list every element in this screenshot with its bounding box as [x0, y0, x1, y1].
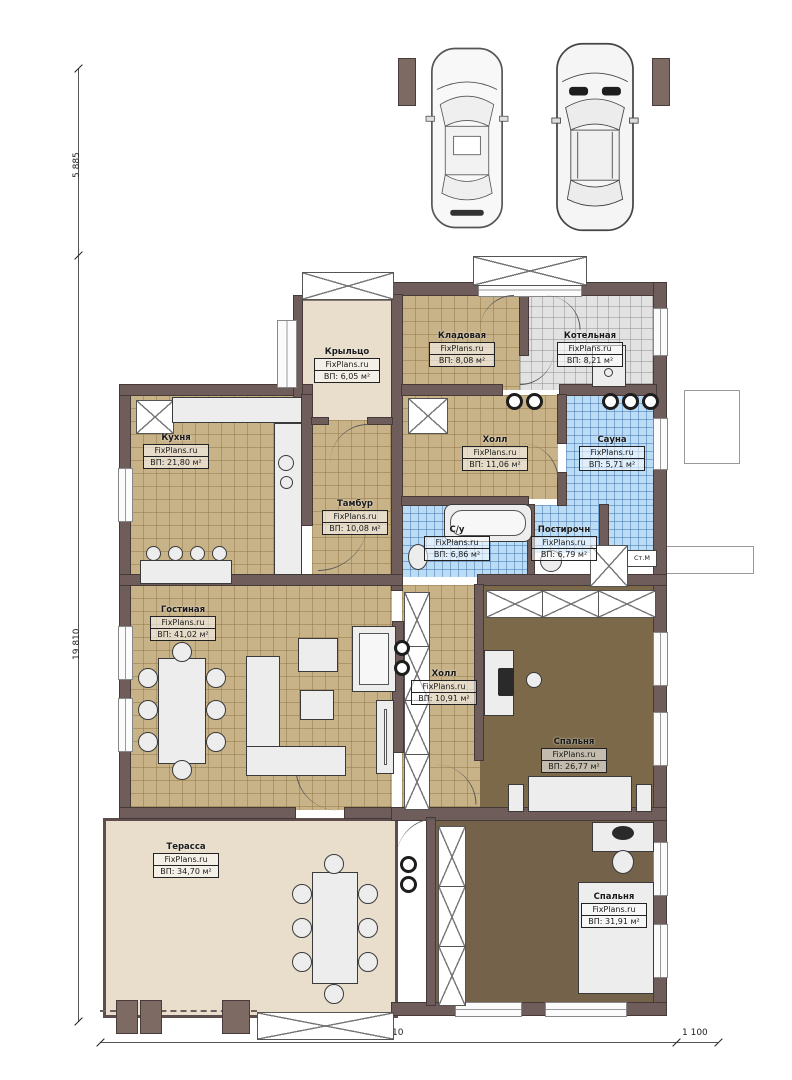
window	[545, 1002, 627, 1017]
room-label-storage: КладоваяFixPlans.ruВП: 8,08 м²	[420, 332, 504, 367]
terrace-chair	[324, 854, 344, 874]
terrace-chair	[292, 918, 312, 938]
terrace-table	[312, 872, 358, 984]
heater-dial	[604, 368, 613, 377]
porch-side-window	[277, 320, 297, 388]
room-label-kitchen: КухняFixPlans.ruВП: 21,80 м²	[134, 434, 218, 469]
wall	[558, 473, 566, 505]
washing-machine-label: Ст.М	[627, 550, 657, 567]
kitchen-counter-top	[172, 397, 302, 423]
right-annex-outline	[684, 390, 740, 464]
boiler-burner	[526, 393, 543, 410]
room-label-bedroom2: СпальняFixPlans.ruВП: 31,91 м²	[572, 893, 656, 928]
room-label-bedroom1: СпальняFixPlans.ruВП: 26,77 м²	[532, 738, 616, 773]
tv-bench	[376, 700, 394, 774]
terrace-pier	[222, 1000, 250, 1034]
kitchen-counter-side	[274, 423, 302, 575]
floor-plan-canvas: 5 885 19 810 14 810 1 100	[0, 0, 792, 1080]
terrace-chair	[292, 952, 312, 972]
wall	[558, 395, 566, 443]
cooktop-burner	[278, 455, 294, 471]
wardrobe-bedroom1	[486, 590, 544, 618]
room-label-living: ГостинаяFixPlans.ruВП: 41,02 м²	[141, 606, 225, 641]
window	[653, 632, 668, 686]
terrace-chair	[358, 918, 378, 938]
terrace-chair	[358, 884, 378, 904]
closet	[404, 754, 430, 810]
sofa	[246, 746, 346, 776]
entry-canopy	[473, 256, 587, 286]
right-ledge-outline	[666, 546, 754, 574]
dining-chair	[138, 700, 158, 720]
dining-chair	[138, 732, 158, 752]
terrace-chair	[292, 884, 312, 904]
dimension-line-left	[78, 68, 79, 1022]
wall	[368, 418, 392, 424]
room-label-laundry: ПостирочнFixPlans.ruВП: 6,79 м²	[522, 526, 606, 561]
room-label-porch: КрыльцоFixPlans.ruВП: 6,05 м²	[305, 348, 389, 383]
dim-left-main: 19 810	[72, 629, 82, 661]
cooktop-burner	[280, 476, 293, 489]
wall	[392, 295, 402, 590]
closet	[404, 592, 430, 648]
window	[653, 418, 668, 470]
flue-ring	[394, 640, 410, 656]
ottoman	[300, 690, 334, 720]
car-1-icon	[424, 46, 510, 230]
dining-chair	[172, 760, 192, 780]
wardrobe-bedroom2	[438, 946, 466, 1006]
dim-left-top: 5 885	[72, 152, 82, 178]
terrace-chair	[358, 952, 378, 972]
kitchen-cupboard	[136, 400, 174, 434]
flue-ring	[400, 856, 417, 873]
closet	[404, 700, 430, 756]
armchair	[298, 638, 338, 672]
parking-pier-left	[398, 58, 416, 106]
window	[118, 698, 133, 752]
wall	[345, 808, 392, 818]
bar-stool	[146, 546, 161, 561]
hall-closet	[408, 398, 448, 434]
dining-chair	[206, 700, 226, 720]
dining-chair	[172, 642, 192, 662]
wall	[302, 395, 312, 525]
parking-pier-right	[652, 58, 670, 106]
kitchen-island	[140, 560, 232, 584]
room-label-bathroom: С/уFixPlans.ruВП: 6,86 м²	[415, 526, 499, 561]
door-arc	[396, 818, 436, 859]
window	[653, 308, 668, 356]
bed	[528, 776, 632, 812]
window	[118, 468, 133, 522]
terrace-chair	[324, 984, 344, 1004]
terrace-pier	[140, 1000, 162, 1034]
stool	[526, 672, 542, 688]
terrace-pier	[116, 1000, 138, 1034]
wall	[402, 385, 502, 395]
stool	[612, 850, 634, 874]
fireplace	[352, 626, 396, 692]
window	[653, 712, 668, 766]
bar-stool	[190, 546, 205, 561]
wall	[520, 295, 528, 355]
porch-canopy	[302, 272, 394, 300]
wardrobe-bedroom2	[438, 886, 466, 948]
desk-chair	[498, 668, 514, 696]
room-label-hall-upper: ХоллFixPlans.ruВП: 11,06 м²	[453, 436, 537, 471]
dining-chair	[206, 668, 226, 688]
bar-stool	[212, 546, 227, 561]
nightstand	[636, 784, 652, 812]
dining-chair	[138, 668, 158, 688]
dimension-line-bottom	[100, 1042, 718, 1043]
mirror	[612, 826, 634, 840]
nightstand	[508, 784, 524, 812]
dining-chair	[206, 732, 226, 752]
bar-stool	[168, 546, 183, 561]
window	[118, 626, 133, 680]
boiler-burner	[622, 393, 639, 410]
terrace-steps	[257, 1012, 394, 1040]
wardrobe-bedroom2	[438, 826, 466, 888]
room-label-boiler: КотельнаяFixPlans.ruВП: 8,21 м²	[548, 332, 632, 367]
window	[653, 924, 668, 978]
window	[653, 842, 668, 896]
room-label-terrace: ТерассаFixPlans.ruВП: 34,70 м²	[144, 843, 228, 878]
wall	[120, 808, 295, 818]
wall	[478, 575, 666, 585]
wall	[312, 418, 328, 424]
flue-ring	[400, 876, 417, 893]
dining-table	[158, 658, 206, 764]
boiler-burner	[506, 393, 523, 410]
boiler-burner	[642, 393, 659, 410]
room-label-hall-lower: ХоллFixPlans.ruВП: 10,91 м²	[402, 670, 486, 705]
wardrobe-bedroom1	[598, 590, 656, 618]
car-2-icon	[550, 42, 640, 232]
dim-bottom-right: 1 100	[682, 1028, 708, 1038]
room-label-vestibule: ТамбурFixPlans.ruВП: 10,08 м²	[313, 500, 397, 535]
room-label-sauna: СаунаFixPlans.ruВП: 5,71 м²	[570, 436, 654, 471]
wardrobe-bedroom1	[542, 590, 600, 618]
boiler-burner	[602, 393, 619, 410]
